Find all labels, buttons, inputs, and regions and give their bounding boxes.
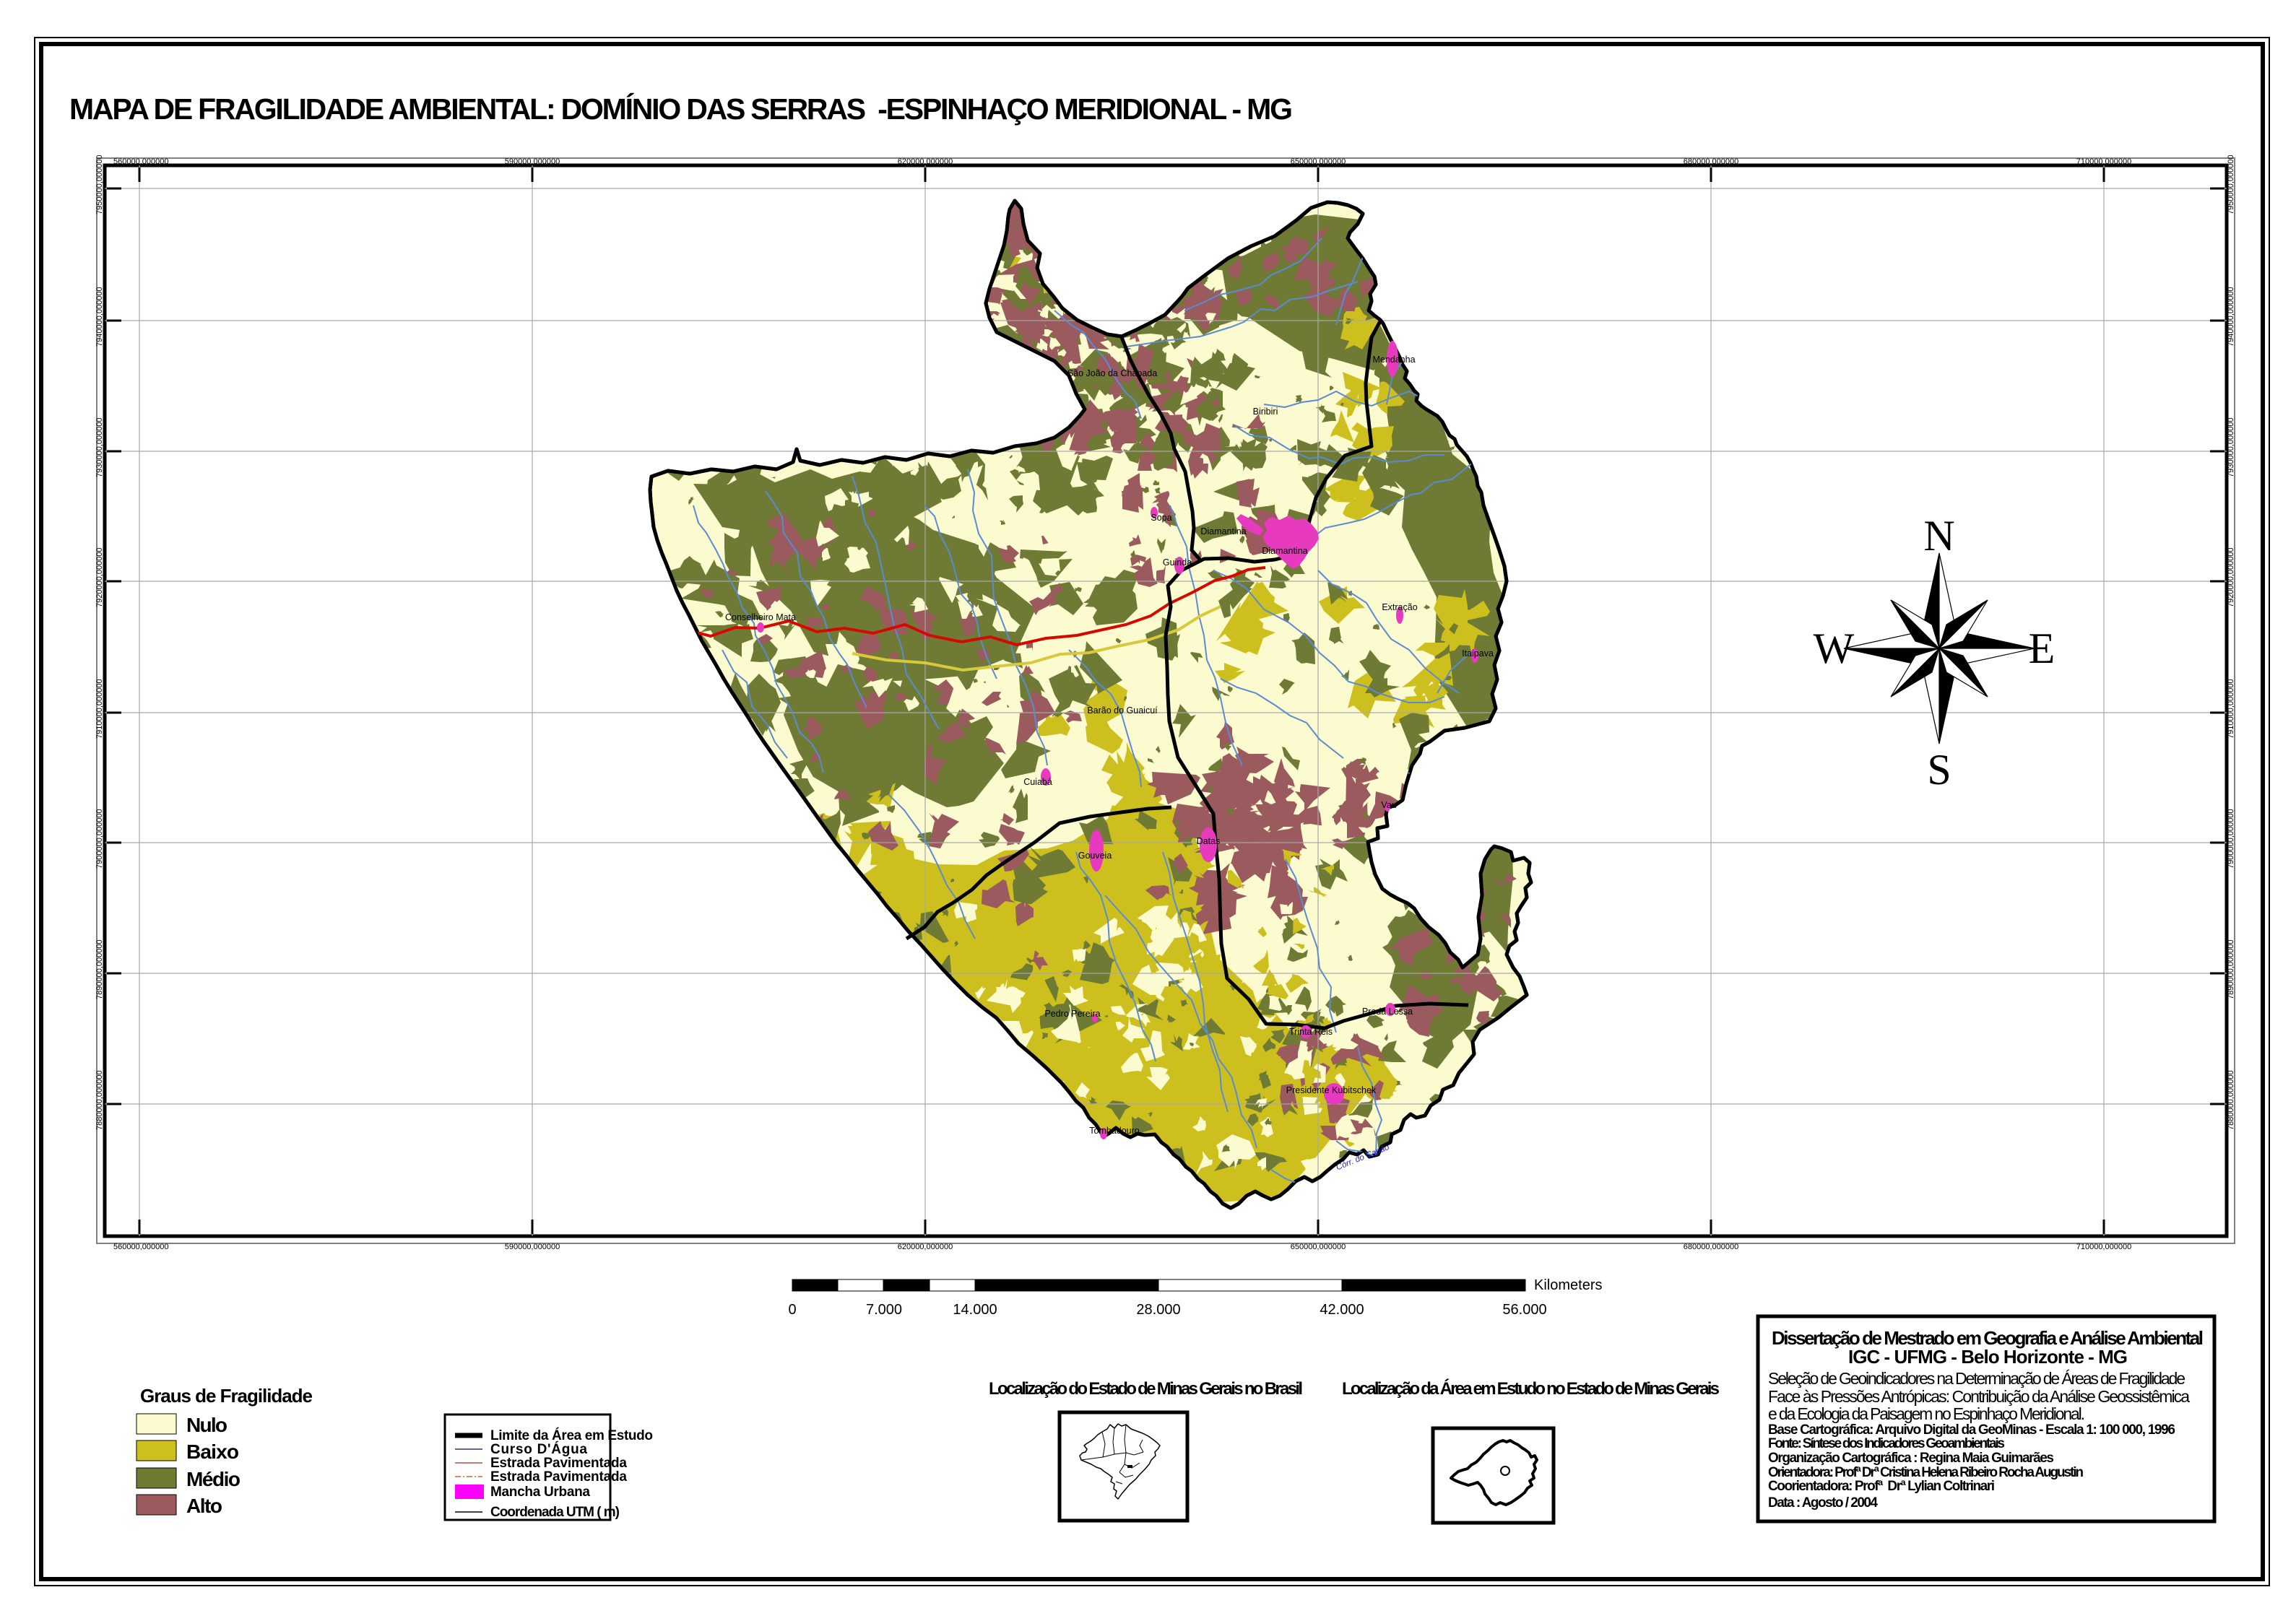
svg-text:Base Cartográfica: Arquivo Dig: Base Cartográfica: Arquivo Digital da Ge… (1768, 1422, 2175, 1438)
svg-text:Graus de Fragilidade: Graus de Fragilidade (140, 1385, 313, 1407)
svg-text:590000,000000: 590000,000000 (505, 1243, 560, 1251)
svg-text:7880000,000000: 7880000,000000 (95, 1070, 104, 1130)
svg-text:710000,000000: 710000,000000 (2076, 157, 2131, 166)
svg-text:Coorientadora: Profª Drª Lyli: Coorientadora: Profª Drª Lylian Coltrina… (1768, 1479, 1995, 1494)
svg-text:7.000: 7.000 (866, 1302, 902, 1318)
svg-text:Guinda: Guinda (1163, 557, 1192, 568)
svg-text:S: S (1927, 746, 1951, 794)
svg-text:Mancha Urbana: Mancha Urbana (490, 1485, 590, 1500)
svg-text:Organização Cartográfica : Reg: Organização Cartográfica : Regina Maia G… (1768, 1451, 2054, 1466)
svg-text:Seleção de Geoindicadores na D: Seleção de Geoindicadores na Determinaçã… (1768, 1369, 2185, 1388)
svg-text:7940000,000000: 7940000,000000 (95, 287, 104, 347)
svg-text:7950000,000000: 7950000,000000 (95, 155, 104, 214)
svg-text:Biribiri: Biribiri (1253, 407, 1278, 417)
svg-text:Conselheiro Mata: Conselheiro Mata (725, 612, 796, 622)
svg-text:Trinta Reis: Trinta Reis (1289, 1027, 1333, 1037)
svg-text:Preda Lessa: Preda Lessa (1362, 1007, 1413, 1017)
svg-text:Médio: Médio (186, 1468, 241, 1490)
svg-text:560000,000000: 560000,000000 (113, 157, 168, 166)
svg-text:Fonte: Síntese dos Indicadores: Fonte: Síntese dos Indicadores Geoambien… (1768, 1436, 2005, 1451)
svg-text:Face às Pressões Antrópicas: C: Face às Pressões Antrópicas: Contribuiçã… (1768, 1387, 2190, 1406)
svg-text:Itaipava: Itaipava (1462, 648, 1494, 659)
svg-text:Pedro Pereira: Pedro Pereira (1044, 1009, 1100, 1019)
svg-text:7940000,000000: 7940000,000000 (2227, 287, 2235, 347)
svg-text:7900000,000000: 7900000,000000 (95, 809, 104, 869)
svg-text:Cuiabá: Cuiabá (1023, 777, 1052, 787)
svg-text:IGC - UFMG - Belo Horizonte -: IGC - UFMG - Belo Horizonte - MG (1848, 1346, 2128, 1368)
svg-text:Gouveia: Gouveia (1078, 851, 1112, 861)
svg-text:Localização da Área em Estudo: Localização da Área em Estudo no Estado … (1342, 1378, 1720, 1399)
svg-text:Diamantina: Diamantina (1262, 546, 1307, 556)
svg-text:7930000,000000: 7930000,000000 (95, 417, 104, 477)
svg-text:Curso D'Água: Curso D'Água (490, 1441, 587, 1457)
svg-text:Alto: Alto (186, 1495, 222, 1517)
svg-text:56.000: 56.000 (1502, 1302, 1546, 1318)
svg-text:Estrada Pavimentada: Estrada Pavimentada (490, 1456, 627, 1471)
svg-text:Mendanha: Mendanha (1372, 355, 1415, 365)
svg-text:7910000,000000: 7910000,000000 (95, 679, 104, 739)
svg-text:7920000,000000: 7920000,000000 (2227, 547, 2235, 607)
svg-text:7880000,000000: 7880000,000000 (2227, 1070, 2235, 1130)
svg-text:Barão do Guaicuí: Barão do Guaicuí (1087, 705, 1158, 716)
svg-text:620000,000000: 620000,000000 (898, 157, 953, 166)
svg-text:Coordenada UTM ( m): Coordenada UTM ( m) (490, 1505, 620, 1520)
svg-text:7890000,000000: 7890000,000000 (2227, 939, 2235, 999)
svg-text:Orientadora: Profª Drª Cristin: Orientadora: Profª Drª Cristina Helena R… (1768, 1465, 2084, 1480)
svg-text:E: E (2029, 625, 2055, 672)
svg-text:710000,000000: 710000,000000 (2076, 1243, 2131, 1251)
svg-text:Presidente Kubitschek: Presidente Kubitschek (1286, 1085, 1377, 1095)
svg-text:Datas: Datas (1197, 836, 1221, 846)
svg-text:Nulo: Nulo (186, 1414, 228, 1436)
svg-text:7930000,000000: 7930000,000000 (2227, 417, 2235, 477)
svg-text:7920000,000000: 7920000,000000 (95, 547, 104, 607)
svg-text:620000,000000: 620000,000000 (898, 1243, 953, 1251)
svg-text:Tombadouro: Tombadouro (1089, 1126, 1140, 1136)
svg-text:Data : Agosto / 2004: Data : Agosto / 2004 (1768, 1495, 1878, 1511)
svg-text:Diamantina: Diamantina (1200, 526, 1246, 536)
svg-text:Extração: Extração (1382, 602, 1417, 612)
svg-text:0: 0 (788, 1302, 796, 1318)
svg-text:28.000: 28.000 (1136, 1302, 1180, 1318)
svg-text:Kilometers: Kilometers (1534, 1277, 1602, 1293)
svg-text:650000,000000: 650000,000000 (1291, 157, 1346, 166)
svg-text:Limite da Área em Estudo: Limite da Área em Estudo (490, 1427, 653, 1443)
svg-text:14.000: 14.000 (953, 1302, 997, 1318)
svg-text:650000,000000: 650000,000000 (1291, 1243, 1346, 1251)
svg-text:Localização do Estado de Minas: Localização do Estado de Minas Gerais no… (989, 1379, 1303, 1399)
svg-text:7900000,000000: 7900000,000000 (2227, 809, 2235, 869)
svg-text:560000,000000: 560000,000000 (113, 1243, 168, 1251)
svg-text:W: W (1814, 625, 1855, 672)
svg-text:N: N (1923, 512, 1954, 560)
svg-text:7950000,000000: 7950000,000000 (2227, 155, 2235, 214)
svg-text:e da Ecologia da Paisagem no E: e da Ecologia da Paisagem no Espinhaço M… (1768, 1404, 2085, 1423)
svg-text:Baixo: Baixo (186, 1440, 239, 1463)
svg-text:680000,000000: 680000,000000 (1684, 1243, 1738, 1251)
svg-text:42.000: 42.000 (1320, 1302, 1364, 1318)
svg-text:680000,000000: 680000,000000 (1684, 157, 1738, 166)
svg-text:MAPA DE FRAGILIDADE AMBIENTAL:: MAPA DE FRAGILIDADE AMBIENTAL: DOMÍNIO D… (69, 92, 1293, 126)
svg-text:Estrada Pavimentada: Estrada Pavimentada (490, 1469, 627, 1485)
svg-text:590000,000000: 590000,000000 (505, 157, 560, 166)
svg-text:7890000,000000: 7890000,000000 (95, 939, 104, 999)
svg-text:Vau: Vau (1381, 800, 1396, 810)
svg-text:São João da Chapada: São João da Chapada (1067, 368, 1157, 378)
svg-text:7910000,000000: 7910000,000000 (2227, 679, 2235, 739)
svg-text:Sopa: Sopa (1151, 513, 1171, 523)
